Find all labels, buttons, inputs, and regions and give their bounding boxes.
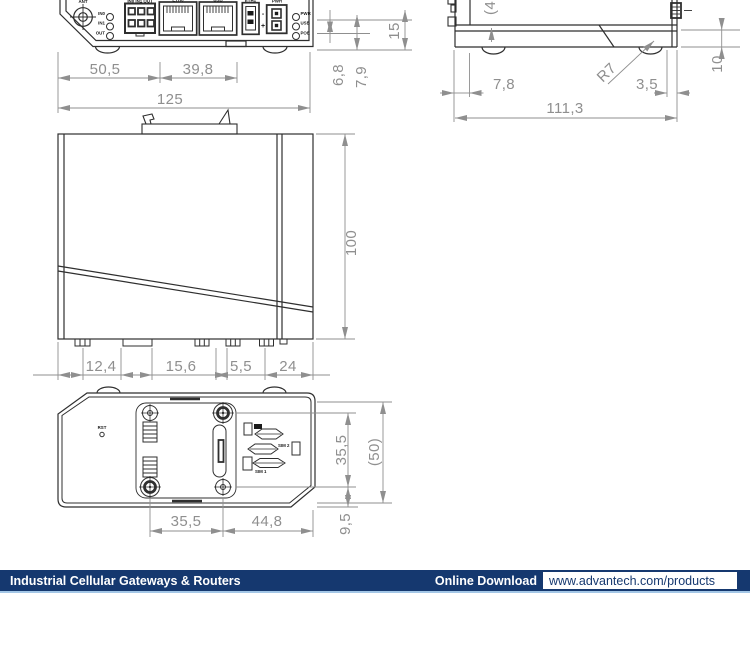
poe-led-label: POE [301,31,310,36]
footer-rule [0,591,750,593]
screw-bottom-right [214,478,232,496]
footer-bar: Industrial Cellular Gateways & Routers O… [0,570,750,591]
screw-top-left [141,404,159,422]
side-connector-detail [671,3,692,18]
in1-label: IN1 [98,21,105,26]
bottom-view: RST SIM 2 SIM 1 [58,387,315,507]
polarity-plus: + [261,23,265,30]
status-leds [293,14,300,40]
vent-grille-bottom [143,457,157,477]
dim-15: 15 [386,22,403,40]
io-header-label: IN0 IN1 OUT [127,0,153,4]
pwr-led [293,14,300,21]
usb-led [293,23,300,30]
dim-7-8: 7,8 [493,76,515,93]
dim-44-8: 44,8 [252,513,283,530]
dim-35-5-h: 35,5 [171,513,202,530]
dim-r7: R7 [594,60,620,86]
dim-groove: (4 [482,1,499,15]
front-panel-view: IN0 IN1 OUT [60,0,313,53]
dim-9-5: 9,5 [337,513,354,535]
top-diagonal-2 [58,271,313,312]
eth1-label: USB [213,0,222,3]
usb-label: ETH1 [245,0,257,3]
sim-slot-icons [243,423,300,470]
front-view-dimensions: 50,5 39,8 125 6,8 7,9 15 [58,10,412,113]
dim-10: 10 [709,55,726,73]
dim-50-5: 50,5 [90,61,121,78]
out-label: OUT [96,31,106,36]
dim-39-8: 39,8 [183,61,214,78]
dim-6-8: 6,8 [330,64,347,86]
pwr-label: PWR [272,0,283,4]
usb-port [242,3,259,35]
dim-35-5-v: 35,5 [333,435,350,466]
pwr-led-label: PWR [301,11,312,16]
screw-bottom-left [139,476,161,498]
dim-15-6: 15,6 [166,358,197,375]
vent-grille-top [143,422,157,442]
top-bottom-bumps [75,339,287,346]
poe-led [293,33,300,40]
usb-led-label: USB [301,21,310,26]
side-view-dimensions: (4 7,8 3,5 111,3 R7 10 [440,1,740,122]
sim2-label: SIM 2 [278,443,290,448]
side-seam [599,25,614,47]
power-connector [267,5,287,33]
technical-drawing: IN0 IN1 OUT [0,0,750,568]
bottom-bump-left [97,387,120,393]
eth0-port [159,2,196,35]
eth1-port [199,2,236,35]
center-slot [213,425,226,477]
top-view-dimensions: 100 12,4 15,6 5,5 24 [33,134,360,380]
footer-url[interactable]: www.advantech.com/products [549,574,715,588]
dim-50: (50) [366,438,383,466]
front-foot-right [263,47,287,54]
dim-24: 24 [279,358,297,375]
polarity-minus: - [262,11,265,18]
top-body [58,134,313,339]
din-rail-clip [142,110,237,134]
io-terminal-connector [125,4,155,37]
rst-label: RST [98,425,107,430]
ant-label: ANT [78,0,87,4]
screw-top-right [212,402,234,424]
sim1-label: SIM 1 [255,469,267,474]
io-status-leds [107,14,114,40]
dim-5-5: 5,5 [230,358,252,375]
in0-led [107,14,114,21]
eth0-label: ETH0 [172,0,184,3]
out-led [107,33,114,40]
side-foot-left [482,47,505,54]
front-foot-left [96,47,120,54]
dim-111-3: 111,3 [546,100,583,117]
reset-button [100,432,104,436]
dim-125: 125 [157,91,183,108]
dim-3-5: 3,5 [636,76,658,93]
footer-title: Industrial Cellular Gateways & Routers [10,574,241,588]
dim-12-4: 12,4 [86,358,117,375]
in1-led [107,23,114,30]
antenna-connector [70,4,96,30]
top-view [58,110,313,346]
side-foot-right [639,47,662,54]
top-diagonal-1 [58,266,313,307]
dim-100: 100 [343,230,360,256]
bottom-view-dimensions: 35,5 (50) 9,5 35,5 44,8 [150,402,392,537]
bottom-bump-right [263,387,286,393]
online-download-label: Online Download [435,574,537,588]
front-bottom-tab [226,41,246,47]
datasheet-page: IN0 IN1 OUT [0,0,750,650]
in0-label: IN0 [98,11,105,16]
url-box[interactable]: www.advantech.com/products [543,572,737,589]
dim-7-9: 7,9 [353,66,370,88]
